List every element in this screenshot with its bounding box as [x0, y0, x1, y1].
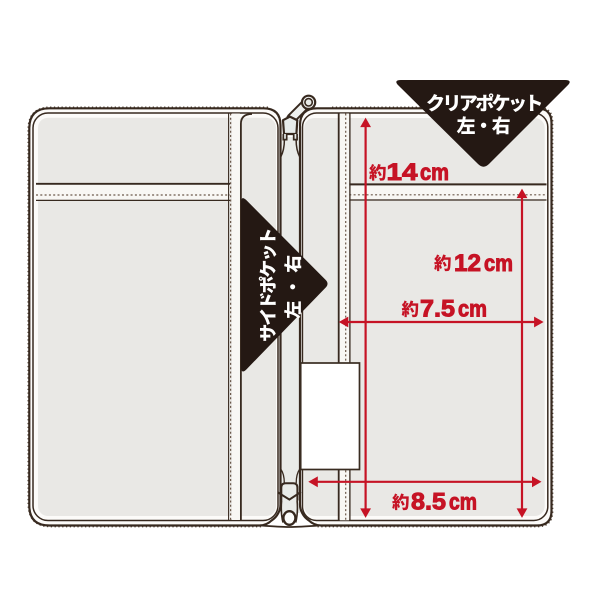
- svg-text:cm: cm: [449, 489, 477, 515]
- svg-text:cm: cm: [420, 159, 449, 185]
- svg-text:cm: cm: [458, 296, 487, 322]
- svg-text:12: 12: [454, 250, 481, 277]
- svg-text:cm: cm: [484, 250, 513, 276]
- svg-text:7.5: 7.5: [420, 296, 455, 323]
- svg-text:14: 14: [387, 159, 418, 186]
- svg-text:8.5: 8.5: [411, 489, 446, 516]
